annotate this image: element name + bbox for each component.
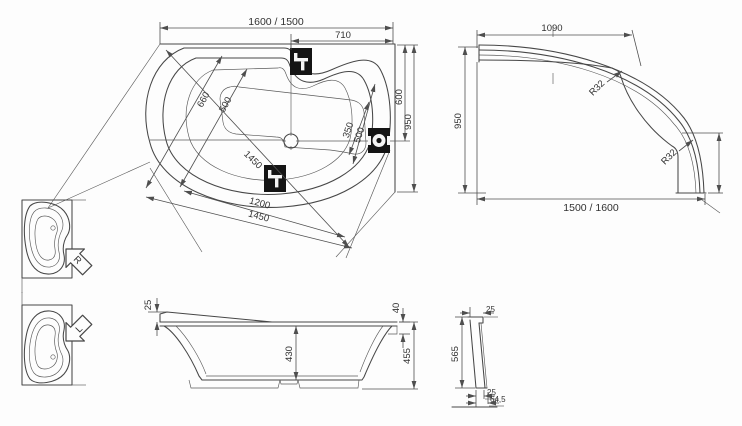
orientation-left-icon: L xyxy=(22,292,92,385)
plan-view: 1600 / 1500 710 600 950 660 500 1450 350… xyxy=(48,16,418,258)
technical-drawing-canvas: 1600 / 1500 710 600 950 660 500 1450 350… xyxy=(0,0,742,426)
dim-overall-length: 1600 / 1500 xyxy=(248,16,304,28)
dim-inner-width-outer: 660 xyxy=(195,90,212,109)
dim-inner-depth: 430 xyxy=(284,346,295,362)
apron-profile-view: 1090 950 R32 R32 1500 / 1600 xyxy=(453,23,723,214)
dim-section-top-thickness: 25 xyxy=(486,305,495,314)
dim-section-bottom-width: 64,5 xyxy=(490,395,506,404)
technical-drawing-page: 1600 / 1500 710 600 950 660 500 1450 350… xyxy=(0,0,742,426)
dim-overall-width: 950 xyxy=(403,114,414,130)
dim-apron-bottom-length: 1500 / 1600 xyxy=(563,202,619,214)
faucet-icon xyxy=(290,48,312,75)
orientation-right-icon: R xyxy=(22,200,92,293)
overflow-icon xyxy=(368,128,390,153)
dim-rim-drop: 40 xyxy=(391,303,402,314)
dim-apron-height: 950 xyxy=(453,113,464,129)
drain-symbol xyxy=(282,132,300,150)
faucet-icon xyxy=(264,165,286,192)
dim-rim-thickness: 25 xyxy=(143,300,154,311)
dim-faucet-offset: 710 xyxy=(335,30,351,41)
dim-radius-upper: R32 xyxy=(587,78,607,98)
front-elevation-view: 25 40 430 455 xyxy=(143,298,418,389)
dim-panel-height: 565 xyxy=(450,346,461,362)
dim-end-width: 600 xyxy=(394,89,405,105)
dim-total-height: 455 xyxy=(402,348,413,364)
dim-apron-top-length: 1090 xyxy=(541,23,562,34)
section-detail-view: 25 565 25 64,5 xyxy=(450,305,506,407)
